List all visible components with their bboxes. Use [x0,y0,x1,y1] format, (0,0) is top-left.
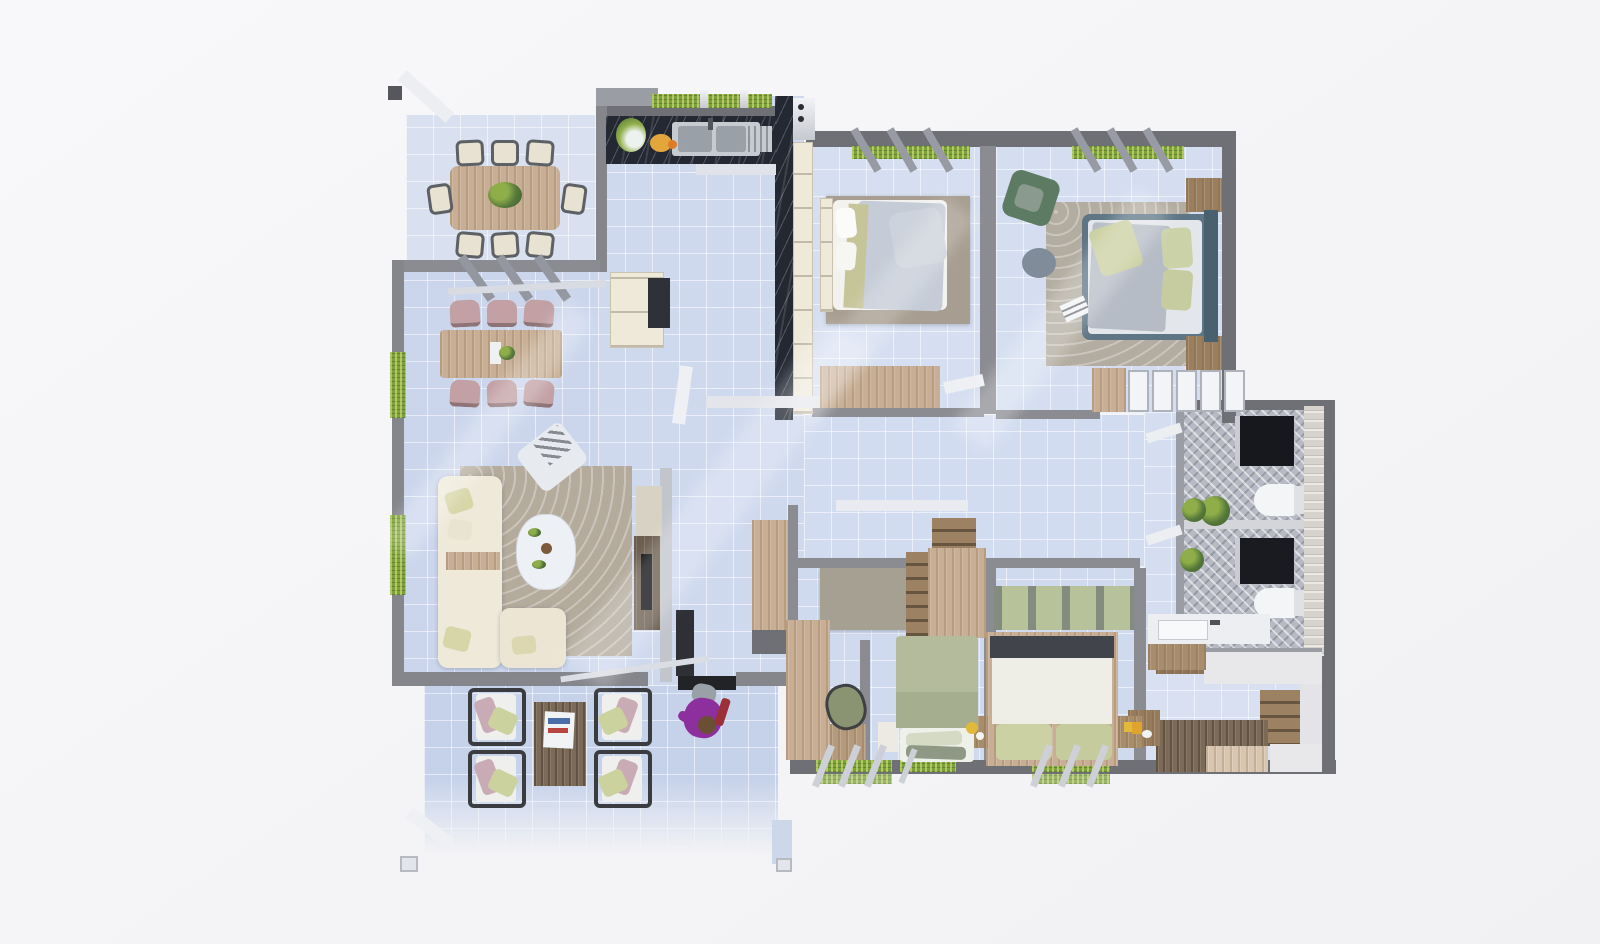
terrace-chair [455,231,485,259]
master-bottom-wall [996,410,1100,419]
bath1-shower-glass [1235,416,1240,466]
kitchen-counter-front [696,164,776,175]
bed1-dresser [820,366,940,408]
fridge-handle-dot-1 [798,104,804,110]
kitchen-top-beam [596,88,658,106]
sink-drainboard [748,126,772,152]
hall-cabinet-base [752,630,788,654]
fruit-orange [668,140,677,149]
closet-white-cabinet-bottom [1270,744,1322,772]
kitchen-window-post-2 [740,90,748,108]
patio-post-left [400,856,418,872]
sink-basin [716,126,746,152]
kitchen-plant [616,118,646,152]
terrace-corner-post [388,86,402,100]
master-nightstand [1186,178,1222,212]
outer-grass-left [816,774,892,784]
tv-shelf [636,486,662,536]
bed4-headband [990,636,1114,658]
bed4-duvet [992,658,1112,724]
closet-bench-front [1206,746,1268,772]
wardrobe-sliding-panel [1200,370,1221,412]
bath2-plant [1180,548,1204,572]
floor-plan-stage [0,0,1600,944]
sink-faucet [708,118,713,130]
fridge-handle-dot-2 [798,116,804,122]
kitchen-window-grass [652,94,772,108]
dining-chair [487,379,518,407]
dining-plant [499,346,515,360]
pantry-cabinet-column [793,142,813,414]
terrace-chair [455,139,484,166]
sofa-pillow [447,518,474,541]
bath2-toilet-tank [1294,590,1304,616]
vanity-drawers [1148,644,1206,670]
wardrobe-sliding-panel [1224,370,1245,412]
bath2-shower-glass [1235,538,1240,584]
bed3-duvet-fold [896,692,978,728]
master-wardrobe-wood [1092,368,1126,412]
dining-chair [523,379,555,409]
sofa-console [446,552,500,570]
bed3-wardrobe-shelf [906,552,928,636]
bed4-candle [1124,722,1132,732]
dining-chair [487,300,517,327]
coffee-table-bowl [541,543,552,554]
wardrobe-sliding-panel [1176,370,1197,412]
office-desk [786,620,830,760]
left-window-planter-1 [390,352,406,418]
sink-basin [678,126,712,152]
wardrobe-sliding-panel [1152,370,1173,412]
vanity-sink [1158,620,1208,640]
bath1-shower [1240,416,1294,466]
hall-glass-rail [836,500,968,511]
patio-magazine-stripe [548,728,568,733]
closet-white-cabinet-top [1204,652,1322,684]
bed4-decor [976,732,984,740]
master-pillow [1161,269,1194,311]
bed1-headboard [820,198,833,312]
bed1-pillow [834,207,857,239]
terrace-chair [560,182,588,215]
kitchen-window-post-1 [700,90,708,108]
vanity-faucet [1210,620,1220,625]
house-left-wall [392,260,404,686]
dining-chair [449,379,480,408]
coffee-table-plant [532,560,546,569]
master-headboard [1204,210,1218,342]
closet-decor-yellow [1132,722,1142,734]
dining-chair [523,299,555,328]
corridor-plant [1182,498,1206,522]
bed1-big-pillow [888,206,949,270]
hall-appliance [648,278,670,328]
master-pouf [1022,248,1056,278]
bath-marble-wall [1304,406,1324,656]
tv-screen [641,554,652,610]
terrace-chair [426,182,454,215]
bedrooms-top-wall [806,131,1236,147]
closet-decor-white [1142,730,1152,738]
bed3-wardrobe [928,548,986,638]
sofa-pillow [511,635,537,655]
bath-divider-ledge [1184,520,1304,529]
left-window-planter-2 [390,515,406,595]
coffee-table-plant [528,528,541,537]
patio-magazine-stripe [548,718,570,724]
person-hair [698,716,716,734]
terrace-centerpiece-plant [488,182,522,208]
terrace-chair [490,231,520,259]
patio-post-right-base [776,858,792,872]
wardrobe-sliding-panel [1128,370,1149,412]
kitchen-marble-pillar [775,96,793,420]
terrace-chair [525,139,555,167]
fridge [793,98,815,140]
outer-grass-right [1032,774,1110,784]
bath2-shower [1240,538,1294,584]
bed1-pillow [835,241,857,271]
bedroom1-bottom-wall [812,408,984,417]
bath1-toilet-tank [1294,486,1304,514]
bath1-toilet [1254,484,1296,516]
entry-door [676,610,694,676]
central-hall-floor [804,415,1178,567]
terrace-chair [491,140,519,166]
dining-chair [449,299,480,328]
hall-tall-cabinet [752,520,788,630]
bed4-curtain [994,586,1134,630]
master-pillow [1161,227,1194,269]
